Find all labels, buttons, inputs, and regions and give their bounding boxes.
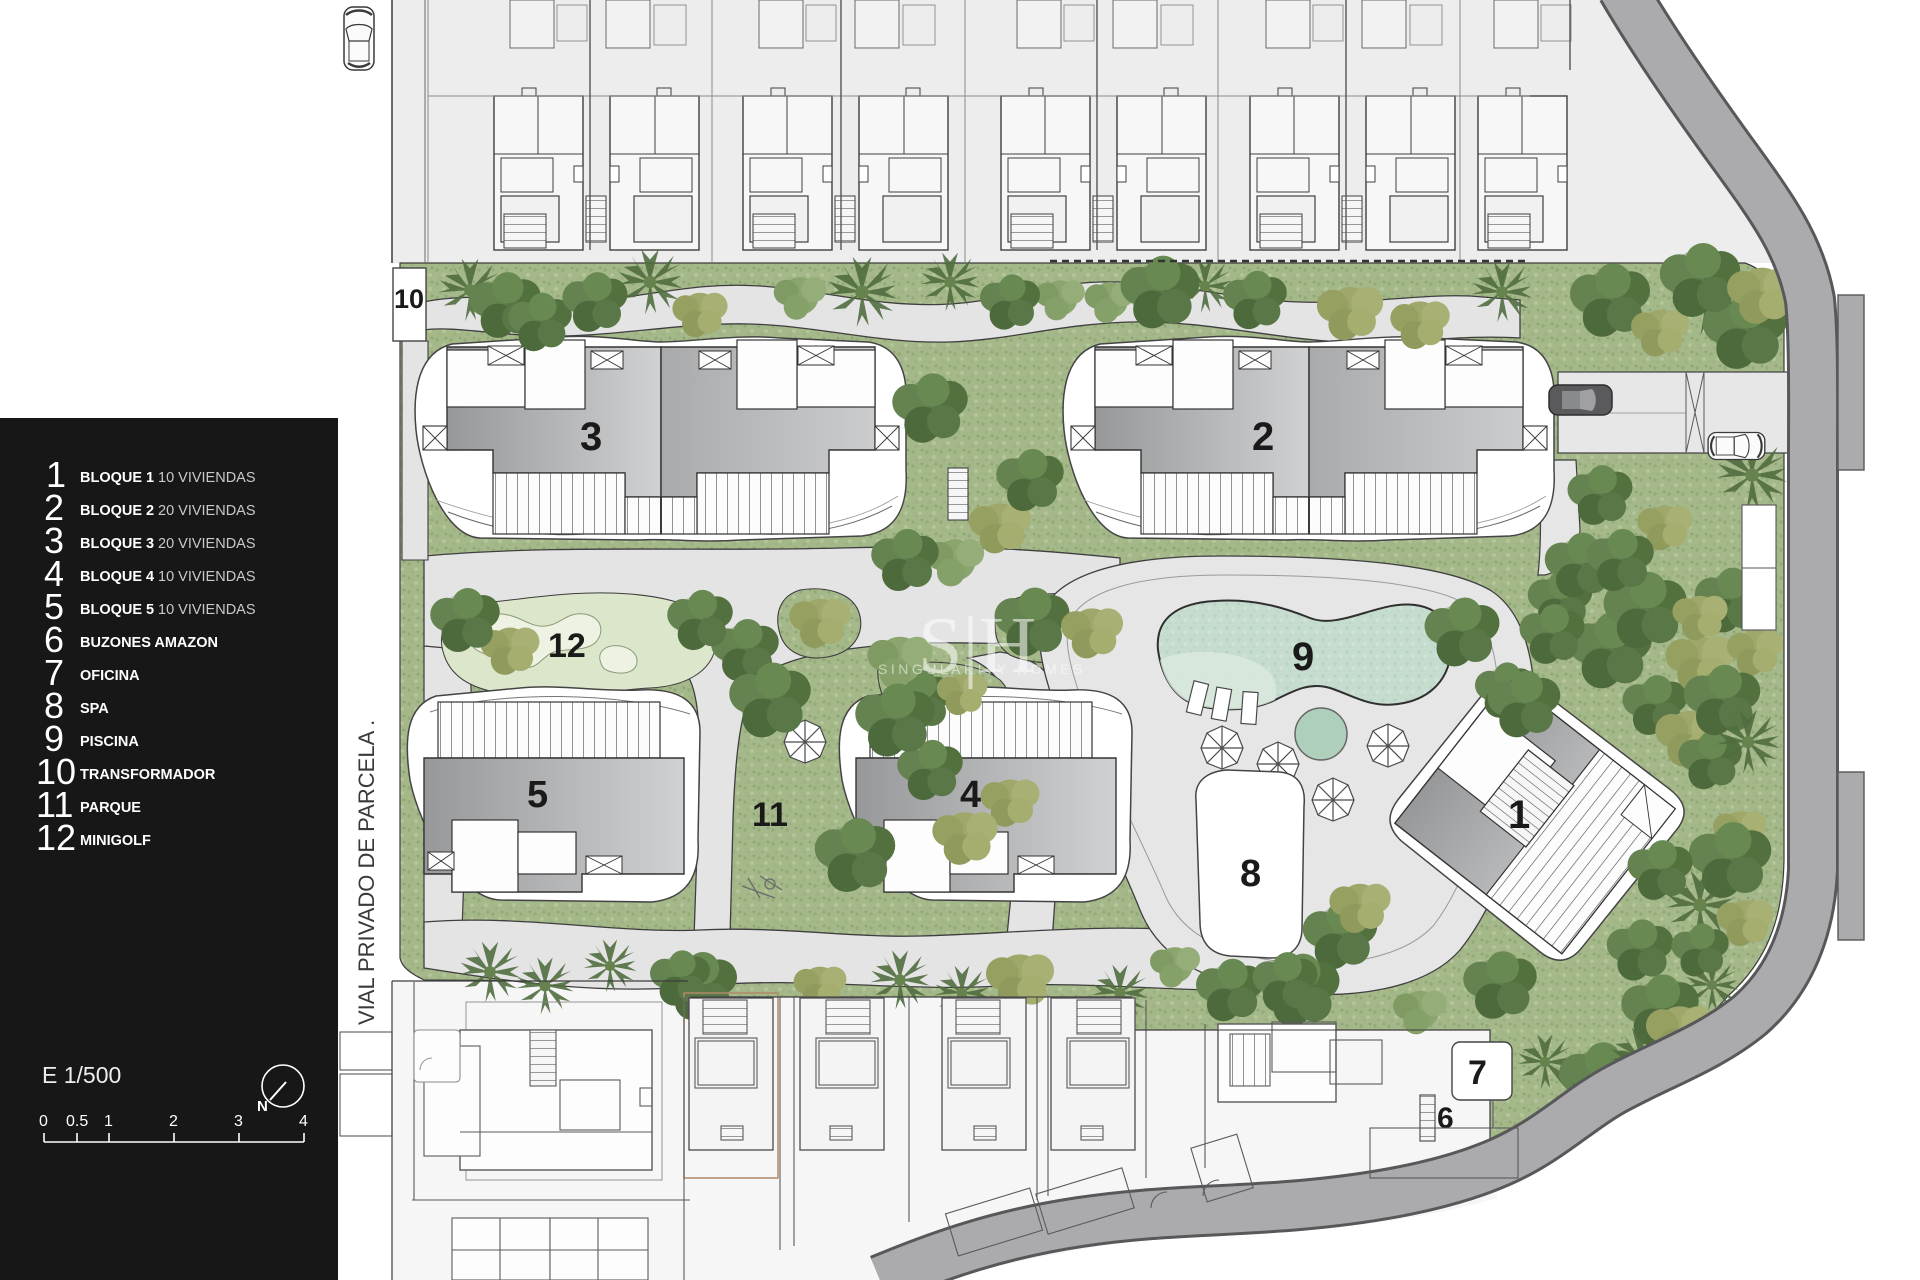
svg-text:2: 2 — [1252, 415, 1274, 459]
svg-text:20 VIVIENDAS: 20 VIVIENDAS — [158, 536, 256, 552]
svg-text:10: 10 — [394, 284, 424, 314]
svg-text:11: 11 — [752, 796, 788, 834]
svg-text:6: 6 — [1437, 1102, 1454, 1135]
svg-text:9: 9 — [1292, 635, 1314, 679]
svg-text:10 VIVIENDAS: 10 VIVIENDAS — [158, 602, 256, 618]
svg-text:0.5: 0.5 — [66, 1113, 88, 1130]
svg-text:12: 12 — [36, 817, 76, 858]
svg-text:8: 8 — [1240, 853, 1261, 895]
svg-text:E 1/500: E 1/500 — [42, 1062, 121, 1088]
svg-text:20 VIVIENDAS: 20 VIVIENDAS — [158, 503, 256, 519]
svg-text:BUZONES AMAZON: BUZONES AMAZON — [80, 635, 218, 651]
svg-text:OFICINA: OFICINA — [80, 668, 140, 684]
svg-text:BLOQUE 2: BLOQUE 2 — [80, 503, 154, 519]
svg-text:4: 4 — [960, 774, 981, 816]
svg-text:BLOQUE 3: BLOQUE 3 — [80, 536, 154, 552]
svg-text:VIAL PRIVADO DE PARCELA .: VIAL PRIVADO DE PARCELA . — [354, 720, 379, 1025]
svg-text:BLOQUE 4: BLOQUE 4 — [80, 569, 154, 585]
svg-text:3: 3 — [234, 1113, 243, 1130]
svg-text:MINIGOLF: MINIGOLF — [80, 833, 151, 849]
svg-text:PARQUE: PARQUE — [80, 800, 141, 816]
svg-text:10 VIVIENDAS: 10 VIVIENDAS — [158, 470, 256, 486]
svg-text:BLOQUE 5: BLOQUE 5 — [80, 602, 154, 618]
svg-text:2: 2 — [169, 1113, 178, 1130]
svg-text:BLOQUE 1: BLOQUE 1 — [80, 470, 154, 486]
svg-text:SINGULARITY HOMES: SINGULARITY HOMES — [878, 661, 1086, 677]
svg-text:10 VIVIENDAS: 10 VIVIENDAS — [158, 569, 256, 585]
svg-text:4: 4 — [299, 1113, 308, 1130]
svg-text:7: 7 — [1468, 1054, 1487, 1092]
svg-text:5: 5 — [527, 774, 548, 816]
svg-text:SPA: SPA — [80, 701, 109, 717]
svg-text:12: 12 — [548, 627, 586, 665]
svg-text:0: 0 — [39, 1113, 48, 1130]
svg-text:TRANSFORMADOR: TRANSFORMADOR — [80, 767, 216, 783]
svg-text:PISCINA: PISCINA — [80, 734, 139, 750]
svg-text:1: 1 — [1508, 793, 1530, 837]
svg-text:N: N — [257, 1098, 268, 1115]
svg-text:1: 1 — [104, 1113, 113, 1130]
svg-text:3: 3 — [580, 415, 602, 459]
